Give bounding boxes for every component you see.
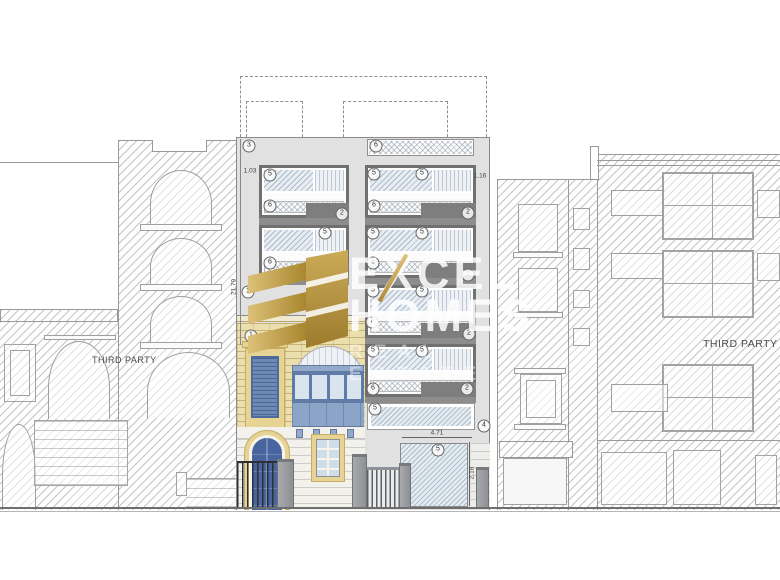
shopfront-opening [673, 450, 721, 505]
window-sill [140, 284, 222, 291]
dim-line-garage-width [402, 437, 472, 438]
left-roofline [0, 162, 118, 163]
elevation-drawing: THIRD PARTY [0, 0, 780, 580]
left-parapet [0, 309, 118, 322]
balcony-corbel [347, 429, 354, 438]
edge-window [757, 190, 780, 218]
dim-line-height [240, 139, 241, 345]
banded-wall [34, 420, 128, 486]
window-opening [518, 204, 558, 252]
window-inner-frame [10, 350, 30, 396]
iron-gate [237, 461, 277, 508]
stair-window [573, 208, 590, 230]
floor-slab [259, 218, 349, 225]
right-party-label: THIRD PARTY [703, 338, 778, 350]
window-frame-group [662, 172, 754, 240]
terrace-railing [367, 403, 475, 430]
shop-lintel-line [597, 440, 780, 441]
left-party-label: THIRD PARTY [92, 355, 157, 365]
stone-post [399, 463, 411, 508]
roof-railing-hatch [369, 141, 472, 154]
small-window [316, 439, 340, 477]
entrance-steps [186, 478, 236, 508]
balcony [611, 190, 663, 216]
roof-structure-outline [343, 101, 448, 137]
shopfront-opening [503, 458, 567, 505]
roof-structure-outline [246, 101, 303, 137]
window-sill [140, 224, 222, 231]
watermark-line3: REAL ESTATE [349, 342, 579, 386]
balcony [611, 384, 668, 412]
balcony-panels [292, 402, 364, 426]
window-frame-group [662, 250, 754, 318]
edge-window [757, 253, 780, 281]
window-left-f4 [259, 165, 349, 218]
dim-line-garage-height [469, 442, 470, 506]
chimney [590, 146, 599, 180]
window-sill [140, 342, 222, 349]
window-frame-group [662, 364, 754, 432]
stone-post [352, 454, 367, 509]
terrace-railing-hatch [371, 407, 471, 426]
floor-slab [365, 218, 476, 225]
stone-post [277, 459, 294, 509]
stone-post [476, 467, 489, 508]
balcony [611, 253, 663, 279]
window-sill [514, 424, 566, 430]
roof-railing [367, 139, 474, 156]
excel-homes-logo-icon [244, 250, 362, 362]
left-roof-notch [152, 140, 207, 152]
louvered-shutter [251, 356, 279, 418]
cornice-line [597, 165, 780, 166]
watermark: EXCEL HOMES REAL ESTATE [349, 253, 579, 386]
shopfront-opening [601, 452, 667, 505]
ground-line [0, 507, 780, 509]
ground-line-secondary [0, 511, 780, 512]
balcony-corbel [296, 429, 303, 438]
niche-cornice [44, 335, 116, 340]
doorway [755, 455, 777, 505]
step-post [176, 472, 187, 496]
watermark-line2: HOMES [349, 295, 579, 337]
window-right-f4 [365, 165, 476, 218]
shop-awning [499, 441, 573, 458]
railing-fence [367, 467, 400, 508]
cornice-line [597, 160, 780, 161]
framed-window [4, 344, 36, 402]
